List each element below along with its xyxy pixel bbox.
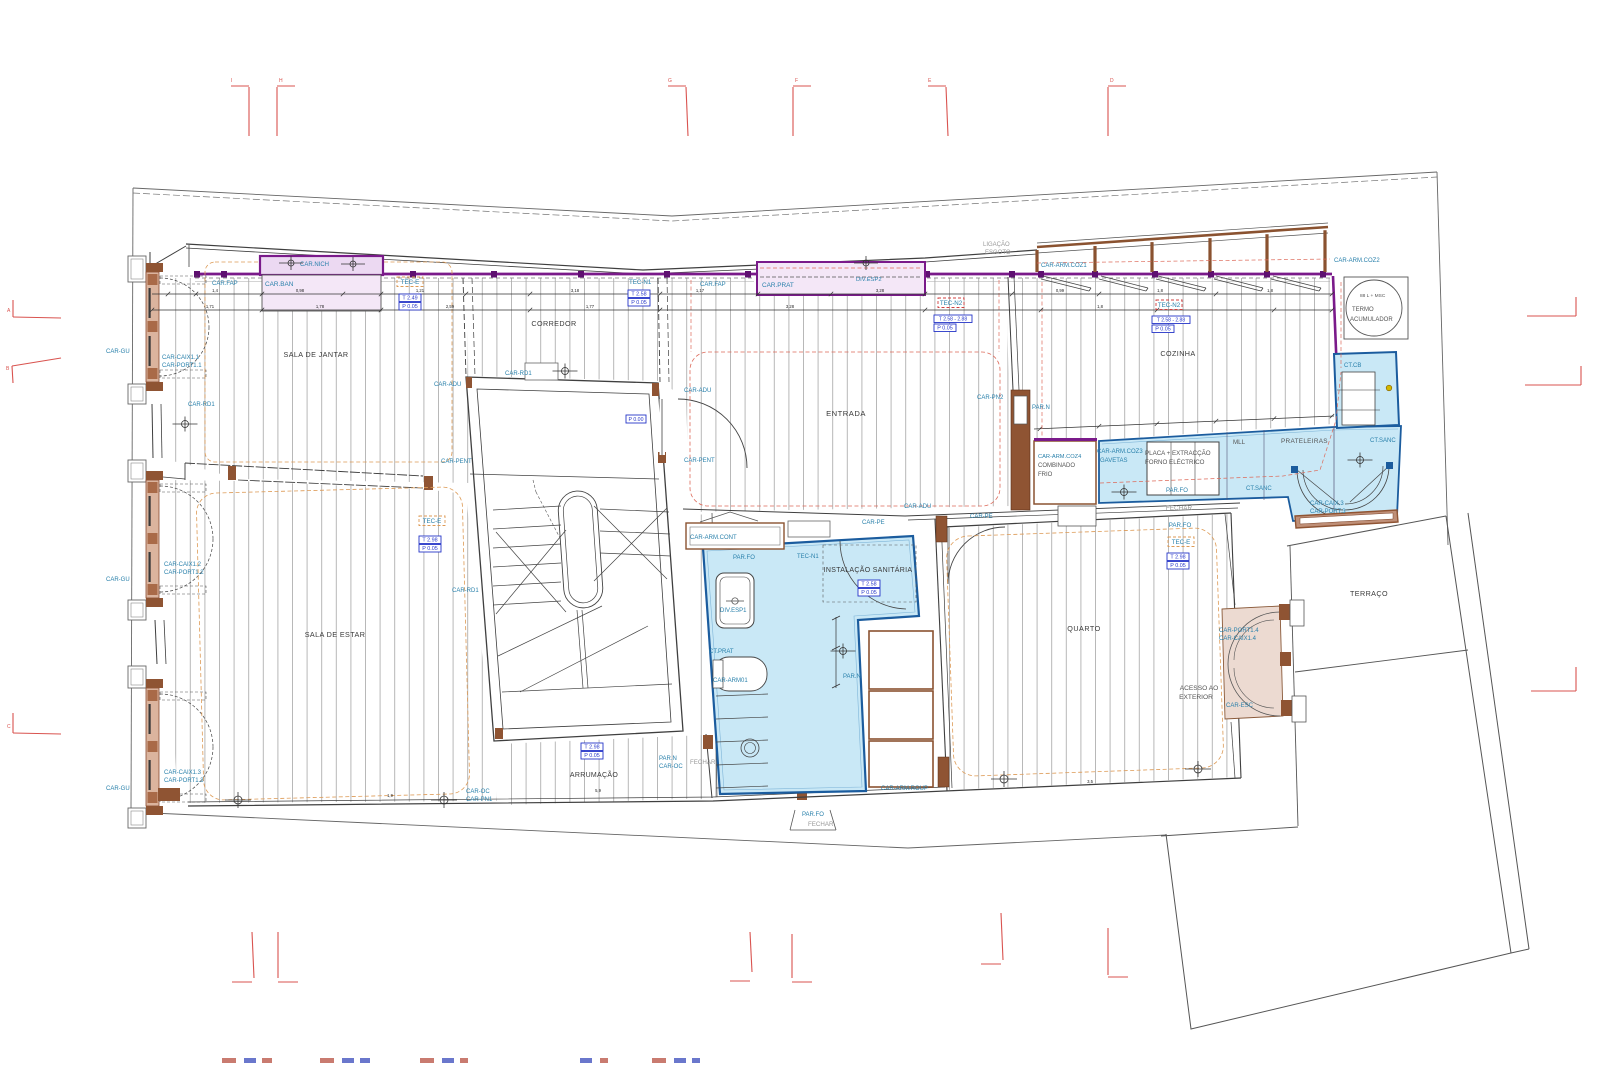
svg-text:3,5: 3,5 [1087,779,1093,784]
svg-text:TEC-E: TEC-E [1172,539,1191,546]
svg-text:T 2.98: T 2.98 [422,538,437,544]
svg-text:CAR-PENT: CAR-PENT [441,459,472,465]
svg-text:3,28: 3,28 [786,304,795,309]
svg-text:CAR-ADU: CAR-ADU [684,388,711,394]
svg-text:CT.CB: CT.CB [1344,363,1361,369]
svg-text:MLL: MLL [1233,439,1246,446]
svg-text:CAR-ESC: CAR-ESC [1226,703,1254,709]
svg-text:CAR-CAIX1.1: CAR-CAIX1.1 [162,355,200,361]
svg-text:CORREDOR: CORREDOR [531,319,576,328]
svg-text:CAR-CAIX1.2: CAR-CAIX1.2 [164,562,202,568]
svg-text:GAVETAS: GAVETAS [1100,458,1127,464]
svg-text:CAR-PORT.3: CAR-PORT.3 [1310,509,1346,515]
svg-text:D: D [1110,78,1114,84]
svg-text:CAR-ADU: CAR-ADU [434,382,461,388]
svg-text:ACESSO AO: ACESSO AO [1180,685,1218,692]
svg-text:COMBINADO: COMBINADO [1038,463,1075,469]
svg-text:DIV.ESP2: DIV.ESP2 [856,277,882,283]
svg-text:T 2.98: T 2.98 [1170,555,1185,561]
svg-text:5,9: 5,9 [595,788,601,793]
svg-text:CAR-RD1: CAR-RD1 [188,402,215,408]
svg-text:CAR-ADU: CAR-ADU [904,504,931,510]
svg-text:1,8: 1,8 [1267,288,1273,293]
svg-text:SALA DE ESTAR: SALA DE ESTAR [305,630,366,639]
svg-text:1,78: 1,78 [316,304,325,309]
svg-text:TEC-E: TEC-E [423,518,442,525]
svg-text:P 0.05: P 0.05 [937,326,953,332]
svg-text:CAR-GU: CAR-GU [106,349,130,355]
svg-text:FECHAR: FECHAR [1166,505,1193,512]
svg-text:TEC-N1: TEC-N1 [629,279,652,286]
svg-text:FORNO ELÉCTRICO: FORNO ELÉCTRICO [1145,459,1205,466]
svg-text:T 2.49: T 2.49 [402,296,417,302]
svg-text:CAR-CAIX1.3: CAR-CAIX1.3 [164,770,202,776]
svg-text:ENTRADA: ENTRADA [826,409,866,418]
svg-text:CAR-PORT1.2: CAR-PORT1.2 [164,570,204,576]
svg-text:CT.SANC: CT.SANC [1370,438,1396,444]
svg-text:PAR.FO: PAR.FO [733,555,755,561]
svg-text:TERRAÇO: TERRAÇO [1350,589,1388,598]
svg-text:ESGOTO: ESGOTO [985,250,1011,256]
svg-text:CAR-OC: CAR-OC [659,764,683,770]
svg-text:P 0.05: P 0.05 [861,590,877,596]
svg-text:PAR.FO: PAR.FO [1166,488,1188,494]
svg-text:CAR-ARM.CONT: CAR-ARM.CONT [690,535,737,541]
svg-text:CAR-RD1: CAR-RD1 [452,588,479,594]
svg-text:0,98: 0,98 [296,288,305,293]
svg-text:CAR-ARM.ROUP: CAR-ARM.ROUP [881,786,928,792]
svg-text:PLACA + EXTRACÇÃO: PLACA + EXTRACÇÃO [1145,450,1211,457]
svg-text:F: F [795,78,798,84]
svg-text:CAR-ARM.COZ1: CAR-ARM.COZ1 [1041,263,1087,269]
svg-text:CAR-OC: CAR-OC [466,789,490,795]
svg-text:CAR-PE: CAR-PE [862,520,885,526]
svg-text:CAR-CAIX.3: CAR-CAIX.3 [1310,501,1344,507]
svg-text:CAR-RD1: CAR-RD1 [505,371,532,377]
svg-text:FRIO: FRIO [1038,472,1053,478]
svg-text:1,77: 1,77 [586,304,595,309]
svg-text:TEC-N1: TEC-N1 [797,554,819,560]
svg-text:TEC-N2: TEC-N2 [1158,302,1181,309]
svg-text:I: I [231,78,232,84]
svg-text:FECHAR: FECHAR [808,821,834,828]
svg-text:PAR.N: PAR.N [1032,405,1050,411]
svg-text:COZINHA: COZINHA [1160,349,1195,358]
svg-text:1,71: 1,71 [206,304,215,309]
svg-text:PAR.N: PAR.N [659,756,677,762]
svg-text:T 2.58 - 2.88: T 2.58 - 2.88 [939,317,967,323]
svg-text:CAR.NICH: CAR.NICH [300,262,329,268]
svg-text:CAR.FAP: CAR.FAP [700,282,726,288]
svg-text:2,59: 2,59 [446,304,455,309]
svg-text:H: H [279,78,283,84]
svg-text:P 0.05: P 0.05 [584,753,600,759]
svg-text:1,8: 1,8 [1157,288,1163,293]
svg-text:CT.SANC: CT.SANC [1246,486,1272,492]
svg-text:CT.PRAT: CT.PRAT [709,649,734,655]
svg-text:CAR-ARM.COZ2: CAR-ARM.COZ2 [1334,258,1380,264]
svg-text:CAR.FAP: CAR.FAP [212,281,238,287]
svg-text:EXTERIOR: EXTERIOR [1179,694,1213,701]
svg-text:PAR.N: PAR.N [843,674,861,680]
svg-text:T 2.58: T 2.58 [631,292,646,298]
svg-text:3,28: 3,28 [876,288,885,293]
svg-text:G: G [668,78,672,84]
svg-text:CAR.BAN: CAR.BAN [265,281,294,288]
svg-text:T 2.58: T 2.58 [861,582,876,588]
svg-text:1,17: 1,17 [696,288,705,293]
svg-text:1,4: 1,4 [212,288,218,293]
svg-text:TERMO: TERMO [1352,307,1374,313]
svg-text:0,99: 0,99 [1056,288,1065,293]
svg-text:P 0.05: P 0.05 [1170,563,1186,569]
svg-text:INSTALAÇÃO SANITÁRIA: INSTALAÇÃO SANITÁRIA [824,565,913,574]
svg-text:CAR.PRAT: CAR.PRAT [762,282,794,289]
svg-text:88 L + MSC: 88 L + MSC [1360,293,1386,299]
svg-text:CAR-PORT1.3: CAR-PORT1.3 [164,778,204,784]
svg-text:ACUMULADOR: ACUMULADOR [1350,317,1393,323]
svg-text:1,8: 1,8 [1097,304,1103,309]
svg-text:TEC-E: TEC-E [401,279,420,286]
svg-text:T 2.98: T 2.98 [584,745,599,751]
svg-text:CAR-GU: CAR-GU [106,577,130,583]
svg-text:P 0.05: P 0.05 [402,304,418,310]
svg-text:3,18: 3,18 [571,288,580,293]
svg-text:P 0.05: P 0.05 [422,546,438,552]
svg-text:FECHAR: FECHAR [690,759,716,766]
svg-text:QUARTO: QUARTO [1067,624,1101,633]
svg-text:CAR-ARM.COZ3: CAR-ARM.COZ3 [1097,449,1143,455]
svg-text:1,9: 1,9 [387,793,393,798]
svg-text:CAR-PN1: CAR-PN1 [466,797,493,803]
svg-text:CAR-ARM.COZ4: CAR-ARM.COZ4 [1038,454,1081,460]
svg-text:SALA DE JANTAR: SALA DE JANTAR [284,350,349,359]
svg-text:CAR-PE: CAR-PE [970,514,993,520]
svg-text:P 0.00: P 0.00 [629,417,644,423]
svg-text:TEC-N2: TEC-N2 [940,300,963,307]
svg-text:CAR-GU: CAR-GU [106,786,130,792]
svg-text:CAR-CAIX1.4: CAR-CAIX1.4 [1219,636,1257,642]
svg-text:C: C [7,724,11,730]
svg-text:1,21: 1,21 [416,288,425,293]
svg-text:CAR-PORT1.4: CAR-PORT1.4 [1219,628,1259,634]
svg-text:P 0.05: P 0.05 [631,300,647,306]
svg-text:CAR-PORT1.1: CAR-PORT1.1 [162,363,202,369]
svg-text:ARRUMAÇÃO: ARRUMAÇÃO [570,770,618,779]
svg-text:P 0.05: P 0.05 [1155,327,1171,333]
svg-text:CAR-PENT: CAR-PENT [684,458,715,464]
svg-text:DIV.ESP1: DIV.ESP1 [720,608,747,614]
svg-text:PAR.FO: PAR.FO [802,812,824,818]
svg-text:PAR.FO: PAR.FO [1169,522,1192,529]
svg-text:T 2.58 - 2.88: T 2.58 - 2.88 [1157,318,1185,324]
svg-text:LIGAÇÃO: LIGAÇÃO [983,241,1010,248]
svg-text:CAR-PN2: CAR-PN2 [977,395,1004,401]
svg-text:PRATELEIRAS: PRATELEIRAS [1281,438,1328,445]
svg-text:CAR-ARM01: CAR-ARM01 [713,678,748,684]
